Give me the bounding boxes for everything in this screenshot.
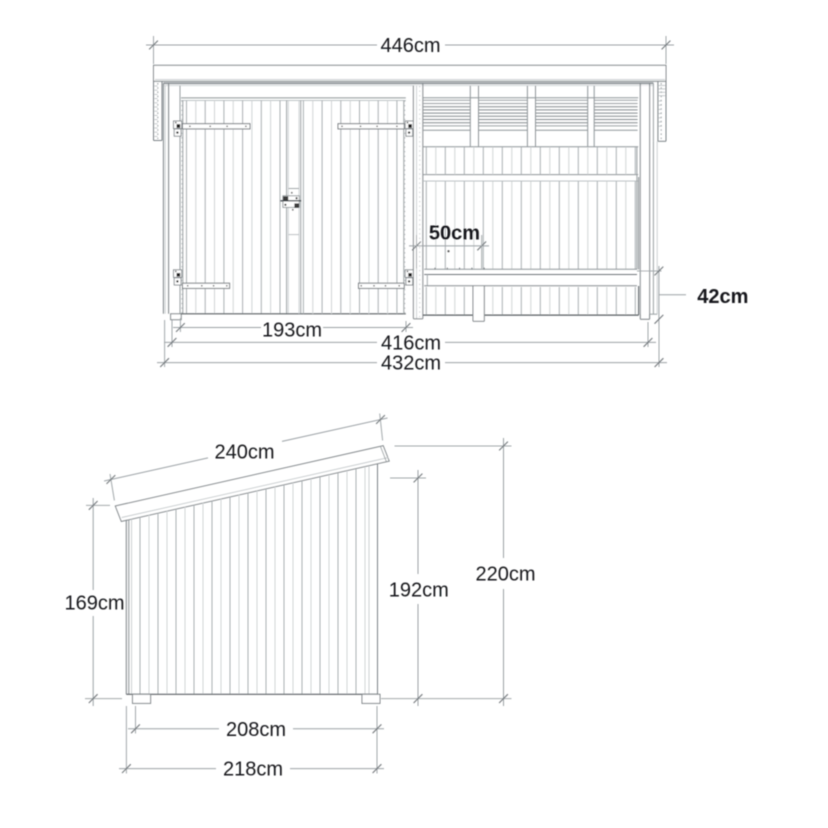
svg-text:169cm: 169cm [64,593,124,615]
svg-text:208cm: 208cm [226,719,286,741]
svg-text:192cm: 192cm [389,580,449,602]
svg-text:193cm: 193cm [262,319,322,341]
svg-text:240cm: 240cm [214,441,274,463]
svg-text:42cm: 42cm [697,286,748,308]
svg-text:218cm: 218cm [223,759,283,781]
svg-text:432cm: 432cm [381,353,441,375]
svg-text:50cm: 50cm [429,222,480,244]
svg-text:446cm: 446cm [380,35,440,57]
svg-text:220cm: 220cm [475,564,535,586]
svg-text:416cm: 416cm [381,333,441,355]
